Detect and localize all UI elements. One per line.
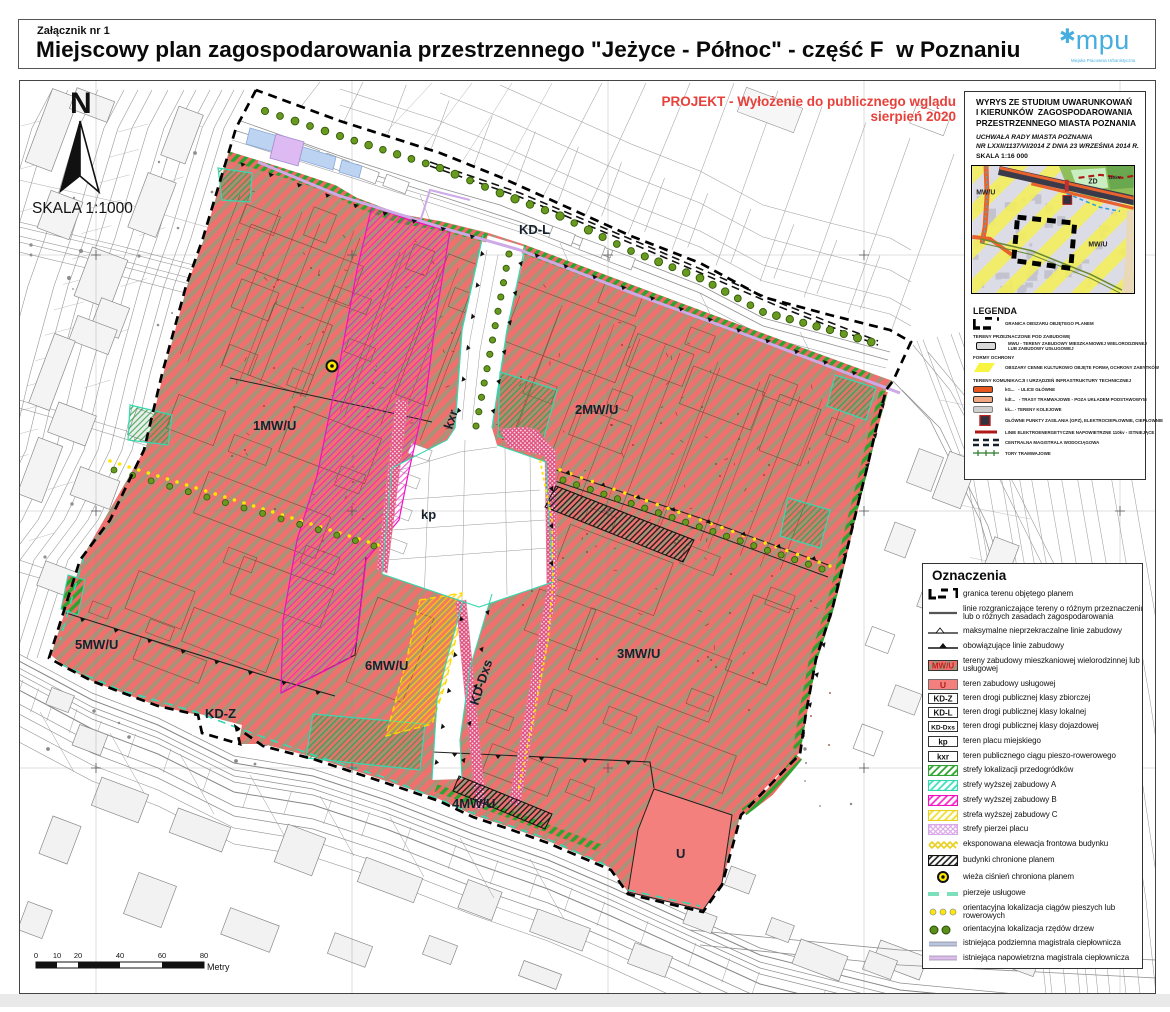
svg-text:MW/U: MW/U <box>932 661 954 670</box>
svg-text:kp: kp <box>421 507 436 522</box>
svg-text:MW/U: MW/U <box>1088 242 1107 249</box>
svg-text:KD-L: KD-L <box>519 222 550 237</box>
svg-text:2MW/U: 2MW/U <box>575 402 618 417</box>
svg-text:Metry: Metry <box>207 962 230 972</box>
svg-text:110kV: 110kV <box>1108 175 1121 180</box>
svg-text:40: 40 <box>116 951 124 960</box>
svg-text:ZD: ZD <box>1088 179 1097 186</box>
svg-text:SKALA 1:1000: SKALA 1:1000 <box>32 200 133 217</box>
svg-text:KD-Z: KD-Z <box>933 694 952 703</box>
svg-text:1MW/U: 1MW/U <box>253 418 296 433</box>
svg-text:60: 60 <box>158 951 166 960</box>
svg-text:80: 80 <box>200 951 208 960</box>
svg-text:U: U <box>940 680 946 690</box>
svg-text:0: 0 <box>34 951 38 960</box>
svg-text:4MW/U: 4MW/U <box>452 796 495 811</box>
svg-text:kxr: kxr <box>937 752 949 761</box>
svg-text:KD-L: KD-L <box>933 708 952 717</box>
svg-text:N: N <box>70 87 92 120</box>
svg-text:20: 20 <box>74 951 82 960</box>
svg-text:6MW/U: 6MW/U <box>365 658 408 673</box>
svg-text:10: 10 <box>53 951 61 960</box>
svg-text:5MW/U: 5MW/U <box>75 637 118 652</box>
svg-text:kp: kp <box>938 737 947 746</box>
svg-text:U: U <box>676 846 685 861</box>
svg-text:KD-Dxs: KD-Dxs <box>931 724 955 731</box>
svg-text:KD-Z: KD-Z <box>205 706 236 721</box>
svg-text:MW/U: MW/U <box>976 190 995 197</box>
svg-text:3MW/U: 3MW/U <box>617 646 660 661</box>
svg-text:sierpień 2020: sierpień 2020 <box>870 109 956 124</box>
svg-text:PROJEKT - Wyłożenie do publicz: PROJEKT - Wyłożenie do publicznego wgląd… <box>661 94 956 109</box>
